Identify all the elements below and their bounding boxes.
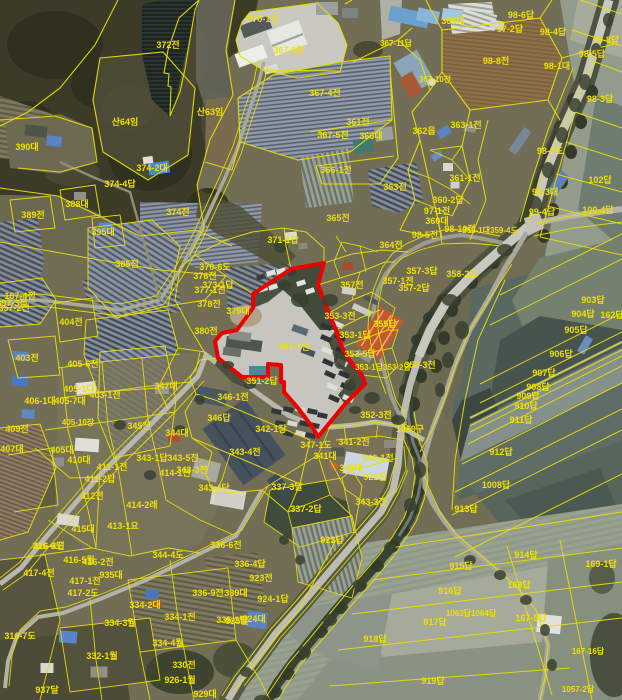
svg-text:98-5전: 98-5전 bbox=[412, 229, 438, 240]
svg-text:923전: 923전 bbox=[249, 572, 272, 583]
svg-text:343-4전: 343-4전 bbox=[229, 446, 260, 457]
svg-text:405-7대: 405-7대 bbox=[54, 395, 85, 406]
svg-text:346-1전: 346-1전 bbox=[217, 391, 248, 402]
svg-text:343-4답: 343-4답 bbox=[198, 482, 230, 493]
svg-text:414-2래: 414-2래 bbox=[126, 499, 157, 510]
svg-text:413-1요: 413-1요 bbox=[107, 521, 139, 531]
svg-text:935대: 935대 bbox=[99, 569, 122, 580]
svg-text:403전: 403전 bbox=[15, 352, 38, 363]
svg-text:380전: 380전 bbox=[194, 325, 217, 336]
svg-text:371-1답: 371-1답 bbox=[267, 234, 299, 245]
svg-text:167-5답: 167-5답 bbox=[515, 612, 547, 623]
svg-text:388대: 388대 bbox=[65, 198, 88, 209]
svg-text:914답: 914답 bbox=[514, 549, 538, 560]
svg-text:1008답: 1008답 bbox=[482, 479, 511, 490]
svg-text:912답: 912답 bbox=[489, 446, 513, 457]
svg-text:916답: 916답 bbox=[438, 585, 462, 596]
svg-text:347-1도: 347-1도 bbox=[300, 440, 332, 450]
svg-text:산64임: 산64임 bbox=[112, 116, 139, 127]
svg-text:334-3월: 334-3월 bbox=[104, 617, 135, 628]
svg-text:335-2답: 335-2답 bbox=[216, 614, 248, 625]
svg-text:374-4답: 374-4답 bbox=[104, 178, 136, 189]
svg-text:169답: 169답 bbox=[507, 579, 531, 590]
svg-text:348대: 348대 bbox=[339, 462, 362, 473]
svg-text:906답: 906답 bbox=[549, 348, 573, 359]
svg-text:351-1전: 351-1전 bbox=[278, 341, 309, 352]
svg-text:98-5답: 98-5답 bbox=[579, 48, 606, 59]
svg-text:390대: 390대 bbox=[15, 141, 38, 152]
svg-text:377-1전: 377-1전 bbox=[194, 284, 225, 295]
svg-text:98-2도: 98-2도 bbox=[537, 146, 564, 156]
svg-text:167-16답: 167-16답 bbox=[572, 646, 605, 656]
svg-text:905답: 905답 bbox=[564, 324, 588, 335]
svg-text:347대: 347대 bbox=[154, 380, 177, 391]
svg-text:363-1전: 363-1전 bbox=[450, 119, 481, 130]
svg-text:351-2답: 351-2답 bbox=[246, 375, 278, 386]
svg-text:929대: 929대 bbox=[193, 688, 216, 699]
svg-text:337-2답: 337-2답 bbox=[290, 503, 322, 514]
svg-text:924-1답: 924-1답 bbox=[257, 593, 289, 604]
svg-text:98-4답: 98-4답 bbox=[540, 26, 567, 37]
svg-text:913답: 913답 bbox=[454, 503, 478, 514]
svg-text:357-3답: 357-3답 bbox=[406, 265, 438, 276]
svg-text:1057-2답: 1057-2답 bbox=[562, 684, 595, 694]
svg-text:370-6도: 370-6도 bbox=[199, 262, 231, 272]
svg-text:162답: 162답 bbox=[600, 309, 622, 320]
svg-text:417-4전: 417-4전 bbox=[23, 567, 54, 578]
svg-text:344대: 344대 bbox=[165, 427, 188, 438]
svg-text:355답: 355답 bbox=[373, 318, 397, 329]
svg-text:909답: 909답 bbox=[516, 390, 540, 401]
svg-text:415대: 415대 bbox=[71, 523, 94, 534]
svg-text:342-1장: 342-1장 bbox=[255, 423, 287, 434]
svg-text:97-1전: 97-1전 bbox=[424, 205, 450, 216]
svg-text:367-4전: 367-4전 bbox=[309, 87, 340, 98]
svg-text:100-4답: 100-4답 bbox=[582, 204, 614, 215]
svg-text:365전: 365전 bbox=[326, 212, 349, 223]
svg-text:918답: 918답 bbox=[363, 633, 387, 644]
svg-text:353-3전: 353-3전 bbox=[324, 310, 355, 321]
svg-text:99-4답: 99-4답 bbox=[529, 206, 556, 217]
svg-text:379대: 379대 bbox=[226, 305, 249, 316]
svg-text:923답: 923답 bbox=[320, 534, 344, 545]
svg-text:341대: 341대 bbox=[313, 450, 336, 461]
svg-text:411-1전: 411-1전 bbox=[97, 461, 128, 472]
svg-text:99-8답: 99-8답 bbox=[593, 34, 620, 45]
svg-text:343-3전: 343-3전 bbox=[176, 464, 207, 475]
svg-text:343-1답: 343-1답 bbox=[136, 452, 168, 463]
svg-text:364전: 364전 bbox=[379, 239, 402, 250]
svg-text:405대: 405대 bbox=[50, 444, 73, 455]
svg-text:102답: 102답 bbox=[588, 174, 612, 185]
svg-text:370-1전: 370-1전 bbox=[247, 13, 278, 24]
svg-text:367-10전: 367-10전 bbox=[419, 74, 451, 84]
svg-text:919답: 919답 bbox=[421, 675, 445, 686]
svg-text:98-3답: 98-3답 bbox=[587, 93, 614, 104]
svg-text:367-11답: 367-11답 bbox=[380, 38, 412, 48]
svg-text:361전: 361전 bbox=[346, 116, 369, 127]
svg-text:341-2전: 341-2전 bbox=[338, 436, 369, 447]
svg-text:417-2도: 417-2도 bbox=[67, 588, 99, 598]
svg-text:911답: 911답 bbox=[510, 414, 534, 425]
svg-text:345전: 345전 bbox=[127, 420, 150, 431]
svg-text:395대: 395대 bbox=[91, 226, 114, 237]
svg-text:343-3전: 343-3전 bbox=[355, 496, 386, 507]
svg-text:372전: 372전 bbox=[156, 39, 179, 50]
svg-text:416-2전: 416-2전 bbox=[82, 556, 113, 567]
svg-text:98-10전: 98-10전 bbox=[444, 223, 475, 234]
svg-text:389전: 389전 bbox=[21, 209, 44, 220]
svg-text:378전: 378전 bbox=[197, 298, 220, 309]
svg-text:332-1월: 332-1월 bbox=[86, 650, 117, 661]
svg-text:385전: 385전 bbox=[115, 258, 138, 269]
svg-text:366-1전: 366-1전 bbox=[320, 164, 351, 175]
svg-text:353-1답: 353-1답 bbox=[339, 329, 371, 340]
svg-text:169-1답: 169-1답 bbox=[585, 558, 617, 569]
svg-text:357-2전: 357-2전 bbox=[0, 302, 30, 313]
svg-text:367-9답: 367-9답 bbox=[273, 44, 305, 55]
svg-text:921전: 921전 bbox=[363, 471, 386, 482]
svg-text:374전: 374전 bbox=[166, 206, 189, 217]
svg-text:352-3전: 352-3전 bbox=[360, 409, 391, 420]
svg-text:412전: 412전 bbox=[80, 490, 103, 501]
svg-text:363전: 363전 bbox=[383, 181, 406, 192]
svg-text:407대: 407대 bbox=[0, 443, 23, 454]
svg-text:361-1전: 361-1전 bbox=[449, 172, 480, 183]
svg-text:1059구: 1059구 bbox=[396, 424, 424, 434]
svg-text:97-2답: 97-2답 bbox=[497, 23, 524, 34]
svg-text:417-1전: 417-1전 bbox=[69, 575, 100, 586]
svg-text:926-1월: 926-1월 bbox=[164, 674, 195, 685]
svg-text:167-4전: 167-4전 bbox=[4, 290, 35, 301]
svg-text:910답: 910답 bbox=[514, 400, 538, 411]
svg-text:산63임: 산63임 bbox=[197, 106, 224, 117]
svg-text:411-2답: 411-2답 bbox=[85, 473, 117, 484]
svg-text:358-2도: 358-2도 bbox=[446, 269, 478, 279]
svg-text:360-2답: 360-2답 bbox=[432, 194, 464, 205]
svg-text:340-1전: 340-1전 bbox=[362, 452, 393, 463]
svg-text:334-4월: 334-4월 bbox=[152, 637, 183, 648]
svg-text:98-3대: 98-3대 bbox=[532, 186, 558, 197]
svg-text:367-5전: 367-5전 bbox=[317, 129, 348, 140]
svg-text:406-1대: 406-1대 bbox=[24, 395, 55, 406]
svg-text:409전: 409전 bbox=[5, 423, 28, 434]
svg-text:339대: 339대 bbox=[224, 587, 247, 598]
svg-text:336-4답: 336-4답 bbox=[234, 558, 266, 569]
svg-text:937달: 937달 bbox=[35, 684, 59, 695]
svg-text:357-2답: 357-2답 bbox=[398, 282, 430, 293]
svg-text:1063답1064답: 1063답1064답 bbox=[446, 608, 497, 618]
svg-text:353-1답353-2답: 353-1답353-2답 bbox=[355, 362, 411, 372]
svg-text:369대: 369대 bbox=[441, 15, 464, 26]
svg-text:357전: 357전 bbox=[340, 279, 363, 290]
svg-text:336-6전: 336-6전 bbox=[210, 539, 241, 550]
svg-text:98-8전: 98-8전 bbox=[483, 55, 509, 66]
svg-text:403-1전: 403-1전 bbox=[89, 389, 120, 400]
svg-text:330전: 330전 bbox=[172, 659, 195, 670]
svg-text:904답: 904답 bbox=[571, 308, 595, 319]
svg-text:352-3전: 352-3전 bbox=[404, 359, 435, 370]
svg-text:316-6도: 316-6도 bbox=[32, 541, 64, 551]
svg-text:337-3달: 337-3달 bbox=[271, 481, 303, 492]
svg-text:917답: 917답 bbox=[423, 616, 447, 627]
svg-text:915답: 915답 bbox=[449, 560, 473, 571]
svg-text:344-4도: 344-4도 bbox=[152, 550, 184, 560]
svg-text:404전: 404전 bbox=[59, 316, 82, 327]
svg-text:336-9전: 336-9전 bbox=[192, 587, 223, 598]
svg-text:316-7도: 316-7도 bbox=[4, 631, 36, 641]
svg-text:907답: 907답 bbox=[532, 367, 556, 378]
svg-text:405-10장: 405-10장 bbox=[62, 417, 95, 427]
svg-text:374-2대: 374-2대 bbox=[136, 162, 167, 173]
svg-text:346답: 346답 bbox=[207, 412, 231, 423]
svg-text:353-5답: 353-5답 bbox=[344, 348, 376, 359]
svg-text:410대: 410대 bbox=[67, 454, 90, 465]
svg-text:405-6전: 405-6전 bbox=[67, 358, 98, 369]
svg-text:362읍: 362읍 bbox=[412, 126, 435, 136]
svg-text:903답: 903답 bbox=[581, 294, 605, 305]
svg-text:343-5전: 343-5전 bbox=[167, 452, 198, 463]
svg-text:98-1대: 98-1대 bbox=[544, 60, 570, 71]
svg-text:334-2대: 334-2대 bbox=[129, 599, 160, 610]
svg-text:334-1전: 334-1전 bbox=[164, 611, 195, 622]
svg-text:98-6답: 98-6답 bbox=[508, 9, 535, 20]
svg-text:366대: 366대 bbox=[359, 130, 382, 141]
